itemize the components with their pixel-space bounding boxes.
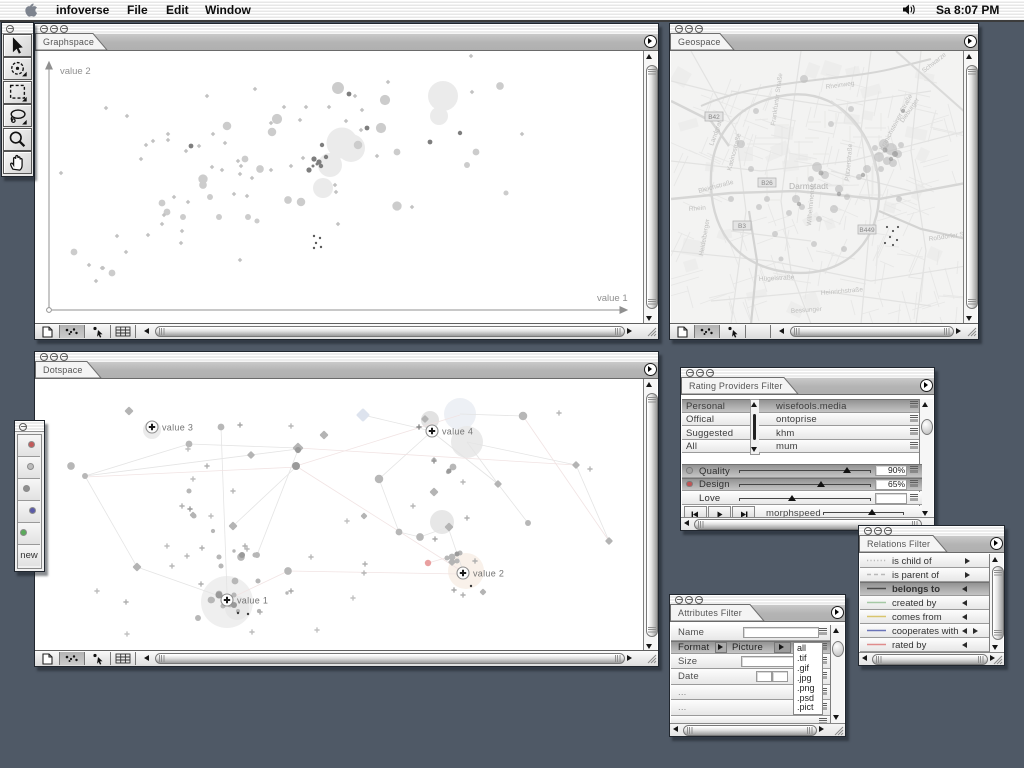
svg-text:B42: B42 (708, 114, 720, 121)
svg-text:Relations Filter: Relations Filter (867, 539, 930, 549)
svg-text:value 1: value 1 (597, 293, 628, 304)
svg-text:Graphspace: Graphspace (43, 37, 94, 47)
svg-text:value 2: value 2 (473, 569, 504, 579)
svg-text:value 2: value 2 (60, 66, 91, 77)
svg-text:Geospace: Geospace (678, 37, 721, 47)
svg-text:Darmstadt: Darmstadt (789, 181, 829, 191)
svg-text:B3: B3 (738, 223, 746, 230)
svg-text:value 1: value 1 (237, 596, 268, 606)
svg-text:Rating Providers Filter: Rating Providers Filter (689, 381, 783, 391)
svg-text:B26: B26 (761, 180, 773, 187)
svg-text:value 4: value 4 (442, 427, 473, 437)
svg-text:Attributes Filter: Attributes Filter (678, 608, 742, 618)
svg-text:value 3: value 3 (162, 423, 193, 433)
svg-text:Dotspace: Dotspace (43, 365, 83, 375)
svg-text:B449: B449 (859, 227, 875, 234)
